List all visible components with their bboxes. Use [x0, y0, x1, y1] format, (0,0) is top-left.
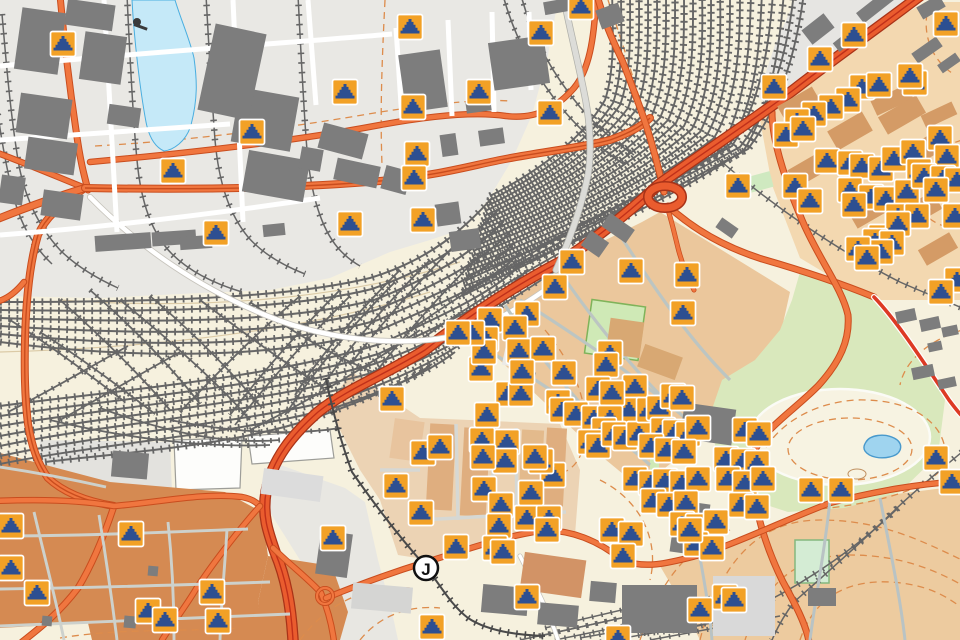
svg-text:J: J	[421, 560, 430, 579]
